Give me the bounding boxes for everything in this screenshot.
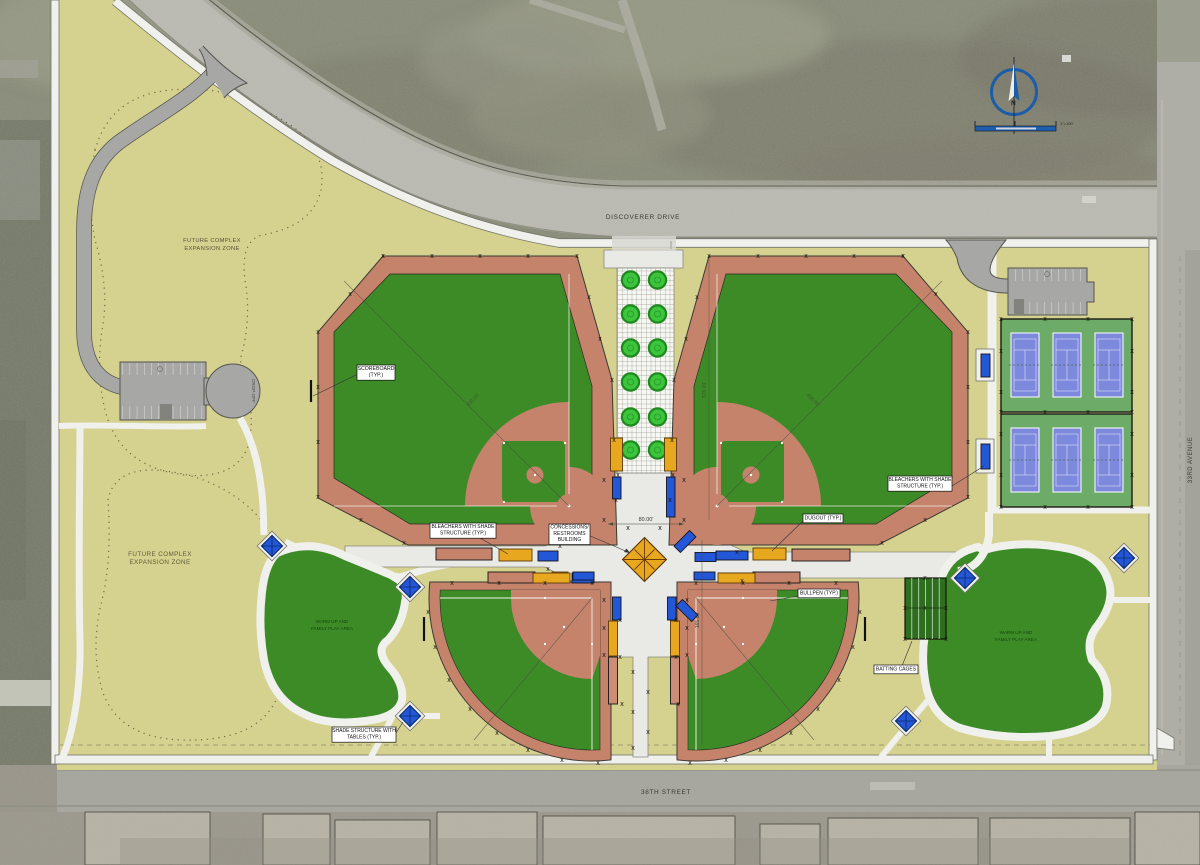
svg-text:x: x bbox=[852, 253, 856, 260]
svg-text:x: x bbox=[804, 253, 808, 260]
svg-text:375.00': 375.00' bbox=[702, 382, 708, 398]
svg-text:x: x bbox=[966, 494, 970, 501]
svg-text:x: x bbox=[616, 472, 620, 479]
svg-text:x: x bbox=[688, 760, 692, 767]
svg-text:x: x bbox=[834, 580, 838, 587]
svg-text:x: x bbox=[999, 389, 1003, 396]
svg-text:FUTURE COMPLEX: FUTURE COMPLEX bbox=[183, 238, 241, 244]
svg-text:38TH STREET: 38TH STREET bbox=[641, 789, 691, 796]
svg-text:x: x bbox=[670, 437, 674, 444]
svg-text:x: x bbox=[787, 580, 791, 587]
svg-text:x: x bbox=[999, 472, 1003, 479]
svg-text:CONCESSIONS/: CONCESSIONS/ bbox=[550, 525, 589, 531]
svg-text:x: x bbox=[631, 745, 635, 752]
svg-text:x: x bbox=[658, 525, 662, 532]
svg-text:x: x bbox=[602, 652, 606, 659]
svg-text:x: x bbox=[999, 431, 1003, 438]
svg-text:DUGOUT (TYP.): DUGOUT (TYP.) bbox=[805, 515, 842, 521]
svg-text:x: x bbox=[903, 636, 907, 643]
svg-text:x: x bbox=[602, 625, 606, 632]
svg-text:x: x bbox=[685, 625, 689, 632]
svg-text:x: x bbox=[966, 384, 970, 391]
svg-text:EXPANSION ZONE: EXPANSION ZONE bbox=[184, 246, 239, 252]
svg-text:x: x bbox=[546, 566, 550, 573]
svg-text:TABLES (TYP.): TABLES (TYP.) bbox=[347, 735, 381, 741]
svg-text:x: x bbox=[999, 409, 1003, 416]
svg-text:x: x bbox=[478, 253, 482, 260]
svg-text:x: x bbox=[402, 540, 406, 547]
svg-text:x: x bbox=[923, 605, 927, 612]
svg-text:1"=100': 1"=100' bbox=[1060, 121, 1074, 126]
svg-text:N: N bbox=[1011, 100, 1016, 107]
svg-text:x: x bbox=[1086, 316, 1090, 323]
svg-text:(TYP.): (TYP.) bbox=[369, 373, 384, 379]
svg-text:SHADE STRUCTURE WITH: SHADE STRUCTURE WITH bbox=[332, 728, 396, 734]
svg-text:BLEACHERS WITH SHADE: BLEACHERS WITH SHADE bbox=[431, 524, 495, 530]
svg-text:x: x bbox=[740, 578, 744, 585]
svg-text:x: x bbox=[1043, 316, 1047, 323]
svg-text:x: x bbox=[447, 677, 451, 684]
svg-text:x: x bbox=[789, 730, 793, 737]
svg-text:80.00': 80.00' bbox=[639, 517, 654, 523]
svg-text:x: x bbox=[999, 504, 1003, 511]
svg-text:x: x bbox=[966, 329, 970, 336]
svg-text:x: x bbox=[1130, 316, 1134, 323]
svg-text:x: x bbox=[1043, 504, 1047, 511]
svg-text:x: x bbox=[999, 316, 1003, 323]
svg-text:x: x bbox=[646, 729, 650, 736]
svg-text:x: x bbox=[359, 517, 363, 524]
svg-text:x: x bbox=[620, 701, 624, 708]
svg-text:x: x bbox=[575, 253, 579, 260]
svg-text:x: x bbox=[618, 617, 622, 624]
svg-text:x: x bbox=[602, 477, 606, 484]
svg-text:x: x bbox=[671, 472, 675, 479]
svg-text:STRUCTURE (TYP.): STRUCTURE (TYP.) bbox=[440, 531, 486, 537]
svg-text:BATTING CAGES: BATTING CAGES bbox=[876, 666, 917, 672]
svg-text:x: x bbox=[880, 540, 884, 547]
svg-text:x: x bbox=[433, 644, 437, 651]
svg-text:x: x bbox=[598, 336, 602, 343]
svg-text:x: x bbox=[526, 253, 530, 260]
svg-text:x: x bbox=[1086, 409, 1090, 416]
svg-text:x: x bbox=[903, 605, 907, 612]
svg-text:x: x bbox=[316, 384, 320, 391]
svg-text:x: x bbox=[1086, 504, 1090, 511]
svg-text:x: x bbox=[672, 377, 676, 384]
svg-text:x: x bbox=[685, 652, 689, 659]
svg-text:BLEACHERS WITH SHADE: BLEACHERS WITH SHADE bbox=[888, 477, 952, 483]
svg-text:x: x bbox=[348, 291, 352, 298]
svg-text:x: x bbox=[1130, 431, 1134, 438]
svg-text:x: x bbox=[695, 294, 699, 301]
svg-text:x: x bbox=[381, 253, 385, 260]
svg-text:x: x bbox=[724, 757, 728, 764]
svg-text:x: x bbox=[543, 580, 547, 587]
svg-text:x: x bbox=[631, 709, 635, 716]
svg-text:x: x bbox=[923, 517, 927, 524]
svg-text:x: x bbox=[837, 677, 841, 684]
svg-text:x: x bbox=[901, 253, 905, 260]
svg-text:x: x bbox=[1130, 504, 1134, 511]
svg-text:x: x bbox=[1130, 409, 1134, 416]
svg-text:FAMILY PLAY AREA: FAMILY PLAY AREA bbox=[995, 637, 1038, 642]
svg-text:x: x bbox=[610, 377, 614, 384]
svg-text:x: x bbox=[682, 477, 686, 484]
svg-text:x: x bbox=[858, 609, 862, 616]
svg-text:x: x bbox=[560, 757, 564, 764]
svg-text:x: x bbox=[668, 497, 672, 504]
svg-text:FUTURE COMPLEX: FUTURE COMPLEX bbox=[128, 551, 192, 558]
svg-text:SCOREBOARD: SCOREBOARD bbox=[358, 366, 395, 372]
svg-text:EXPANSION ZONE: EXPANSION ZONE bbox=[129, 559, 190, 566]
svg-text:DISCOVERER DRIVE: DISCOVERER DRIVE bbox=[606, 214, 680, 221]
svg-text:x: x bbox=[450, 580, 454, 587]
svg-text:x: x bbox=[1130, 472, 1134, 479]
svg-text:x: x bbox=[816, 706, 820, 713]
svg-text:x: x bbox=[587, 294, 591, 301]
svg-text:x: x bbox=[426, 609, 430, 616]
svg-text:x: x bbox=[612, 437, 616, 444]
svg-text:x: x bbox=[1130, 389, 1134, 396]
svg-text:x: x bbox=[685, 597, 689, 604]
svg-text:FAMILY PLAY AREA: FAMILY PLAY AREA bbox=[311, 626, 354, 631]
svg-text:165.00': 165.00' bbox=[695, 612, 701, 628]
svg-text:x: x bbox=[735, 549, 739, 556]
svg-text:x: x bbox=[694, 580, 698, 587]
svg-text:x: x bbox=[966, 439, 970, 446]
svg-text:x: x bbox=[602, 597, 606, 604]
svg-text:x: x bbox=[430, 253, 434, 260]
svg-text:BULLPEN (TYP.): BULLPEN (TYP.) bbox=[800, 590, 838, 596]
svg-text:x: x bbox=[684, 336, 688, 343]
svg-text:x: x bbox=[646, 689, 650, 696]
svg-text:x: x bbox=[1130, 348, 1134, 355]
svg-text:x: x bbox=[626, 525, 630, 532]
svg-text:x: x bbox=[682, 517, 686, 524]
svg-text:x: x bbox=[756, 253, 760, 260]
svg-text:x: x bbox=[851, 644, 855, 651]
svg-text:DROP-OFF: DROP-OFF bbox=[251, 379, 256, 403]
svg-text:x: x bbox=[497, 580, 501, 587]
svg-text:x: x bbox=[596, 760, 600, 767]
svg-text:WARM UP AND: WARM UP AND bbox=[316, 619, 349, 624]
svg-text:x: x bbox=[468, 706, 472, 713]
svg-text:x: x bbox=[590, 580, 594, 587]
svg-text:STRUCTURE (TYP.): STRUCTURE (TYP.) bbox=[897, 484, 943, 490]
svg-text:x: x bbox=[614, 497, 618, 504]
svg-text:BUILDING: BUILDING bbox=[558, 537, 582, 543]
svg-text:33RD AVENUE: 33RD AVENUE bbox=[1188, 437, 1194, 483]
svg-text:x: x bbox=[676, 701, 680, 708]
svg-text:x: x bbox=[526, 747, 530, 754]
svg-text:x: x bbox=[631, 669, 635, 676]
svg-text:x: x bbox=[495, 730, 499, 737]
svg-text:x: x bbox=[923, 575, 927, 582]
svg-text:x: x bbox=[1043, 409, 1047, 416]
svg-text:x: x bbox=[944, 605, 948, 612]
svg-text:x: x bbox=[602, 517, 606, 524]
svg-text:x: x bbox=[316, 439, 320, 446]
svg-text:x: x bbox=[707, 253, 711, 260]
svg-text:x: x bbox=[674, 617, 678, 624]
svg-text:x: x bbox=[674, 654, 678, 661]
svg-text:WARM UP AND: WARM UP AND bbox=[1000, 630, 1033, 635]
svg-text:x: x bbox=[758, 747, 762, 754]
svg-text:x: x bbox=[316, 329, 320, 336]
svg-text:x: x bbox=[618, 654, 622, 661]
svg-text:RESTROOMS: RESTROOMS bbox=[553, 531, 586, 537]
svg-text:x: x bbox=[944, 636, 948, 643]
svg-text:x: x bbox=[316, 494, 320, 501]
svg-text:x: x bbox=[934, 291, 938, 298]
svg-text:x: x bbox=[999, 348, 1003, 355]
